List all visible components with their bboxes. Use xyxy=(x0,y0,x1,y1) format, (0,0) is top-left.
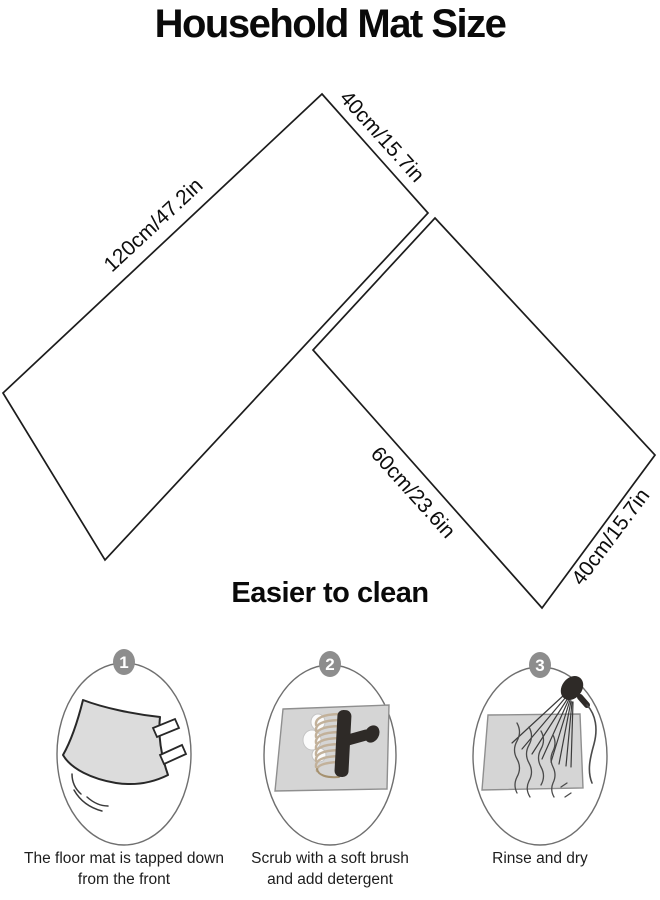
step-2-caption-line-2: and add detergent xyxy=(220,869,440,890)
section-heading: Easier to clean xyxy=(0,577,660,610)
step-2: 2 xyxy=(250,650,410,862)
step-1-caption: The floor mat is tapped down from the fr… xyxy=(14,848,234,890)
step-3: 3 xyxy=(460,651,620,863)
step-1-number: 1 xyxy=(119,653,128,672)
step-3-caption-line-1: Rinse and dry xyxy=(430,848,650,869)
foam-icon xyxy=(303,730,321,750)
step-3-caption: Rinse and dry xyxy=(430,848,650,869)
step-2-caption: Scrub with a soft brush and add detergen… xyxy=(220,848,440,890)
mat-size-diagram: 120cm/47.2in 40cm/15.7in 60cm/23.6in 40c… xyxy=(0,0,660,625)
step-1: 1 xyxy=(44,648,204,860)
product-infographic: Household Mat Size 120cm/47.2in 40cm/15.… xyxy=(0,0,660,900)
step-2-number: 2 xyxy=(325,655,334,674)
step-3-number: 3 xyxy=(535,656,544,675)
step-1-caption-line-2: from the front xyxy=(14,869,234,890)
step-1-caption-line-1: The floor mat is tapped down xyxy=(14,848,234,869)
brush-scrub-illustration xyxy=(275,705,389,791)
step-2-caption-line-1: Scrub with a soft brush xyxy=(220,848,440,869)
